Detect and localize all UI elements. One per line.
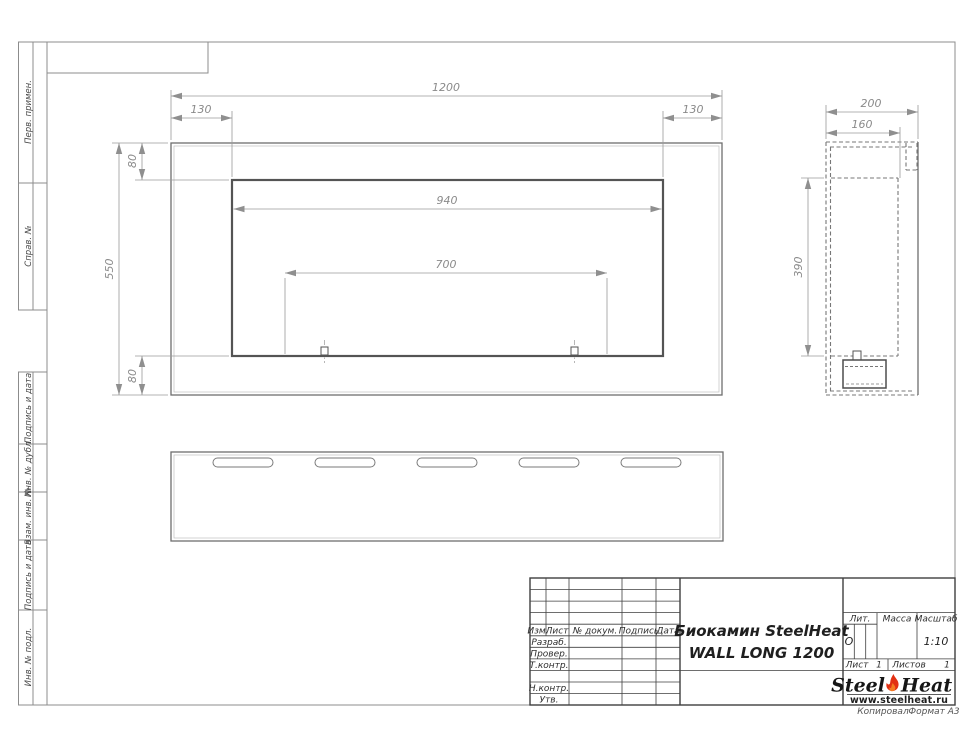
tb-mass-label: Масса [883,615,912,625]
burner-tank [843,360,886,388]
frame-label-vzam-inv: Взам. инв. № [24,487,34,545]
logo-text-steel: Steel [831,675,885,697]
dim-front-mount-span: 700 [285,258,607,354]
dim-text-550: 550 [103,259,116,280]
dim-text-160: 160 [852,118,873,131]
dim-front-bottom-inset: 80 [126,356,229,395]
dim-text-200: 200 [861,97,882,110]
sheet-footer: Копировал Формат А3 [857,707,960,717]
dim-front-opening-width: 940 [234,194,662,209]
title-block: Изм. Лист № докум. Подпись Дата Разраб. … [527,578,957,706]
frame-label-podpis-data-1: Подпись и дата [24,373,34,443]
frame-label-perv-primen: Перв. примен. [24,80,34,144]
side-view-dimensions: 200 160 390 [792,97,918,356]
bottom-view [171,452,723,541]
tb-row-tkontr: Т.контр. [529,661,568,671]
vent-slot-3 [417,458,477,467]
dim-text-80-bottom: 80 [126,369,139,383]
tb-sheets-label: Листов [891,661,926,671]
tb-col-podpis: Подпись [619,627,659,637]
frame-label-sprav-no: Справ. № [24,225,34,267]
drawing-sheet: Перв. примен. Справ. № Подпись и дата Ин… [0,0,970,749]
tb-lit-value: О [845,635,854,648]
frame-label-podpis-data-2: Подпись и дата [24,540,34,610]
side-view [826,142,918,395]
burner-tab [853,351,861,360]
tb-row-nkontr: Н.контр. [529,684,569,694]
frame-top-left-box [47,42,208,73]
tb-scale-label: Масштаб [915,615,958,625]
mount-clip-left [321,347,328,355]
dim-text-130-left: 130 [191,103,212,116]
tb-scale-value: 1:10 [924,635,949,648]
dim-text-390: 390 [792,257,805,278]
vent-slot-4 [519,458,579,467]
dim-text-1200: 1200 [432,81,460,94]
footer-copied-label: Копировал [857,707,909,717]
dim-text-130-right: 130 [683,103,704,116]
dim-text-700: 700 [436,258,457,271]
doc-name-line1: Биокамин SteelHeat [674,622,849,640]
dim-side-inner-depth: 160 [826,118,900,178]
flame-icon [886,674,898,691]
tb-sheet-label: Лист [845,661,870,671]
dim-front-left-inset: 130 [171,103,232,177]
logo-text-heat: Heat [900,675,952,697]
dim-front-right-inset: 130 [663,103,722,177]
tb-row-prover: Провер. [530,650,567,660]
tb-lit-label: Лит. [849,615,871,625]
tb-col-list: Лист [545,627,570,637]
front-view-dimensions: 1200 130 130 550 80 80 [103,81,722,395]
frame-border [47,42,955,705]
footer-format-label: Формат А3 [908,707,960,717]
tb-sheet-value: 1 [876,661,882,671]
vent-slot-5 [621,458,681,467]
dim-front-height: 550 [103,143,168,395]
sheet-frame: Перв. примен. Справ. № Подпись и дата Ин… [19,42,956,705]
side-firebox-hidden [831,178,898,356]
tb-row-razrab: Разраб. [531,638,566,648]
tb-row-utv: Утв. [540,696,559,706]
dim-side-opening-height: 390 [792,178,824,356]
vent-slot-1 [213,458,273,467]
drawing-canvas: Перв. примен. Справ. № Подпись и дата Ин… [0,0,970,749]
frame-label-inv-podl: Инв. № подл. [24,628,34,687]
mount-clip-right [571,347,578,355]
logo-url: www.steelheat.ru [850,695,948,706]
steelheat-logo: Steel Heat www.steelheat.ru [831,674,952,706]
dim-text-80-top: 80 [126,154,139,168]
doc-name-line2: WALL LONG 1200 [689,644,835,662]
tb-col-docnum: № докум. [572,627,617,637]
tb-sheets-value: 1 [944,661,950,671]
dim-front-top-inset: 80 [126,143,229,180]
dim-front-width: 1200 [171,81,722,140]
dim-text-940: 940 [437,194,458,207]
vent-slot-2 [315,458,375,467]
